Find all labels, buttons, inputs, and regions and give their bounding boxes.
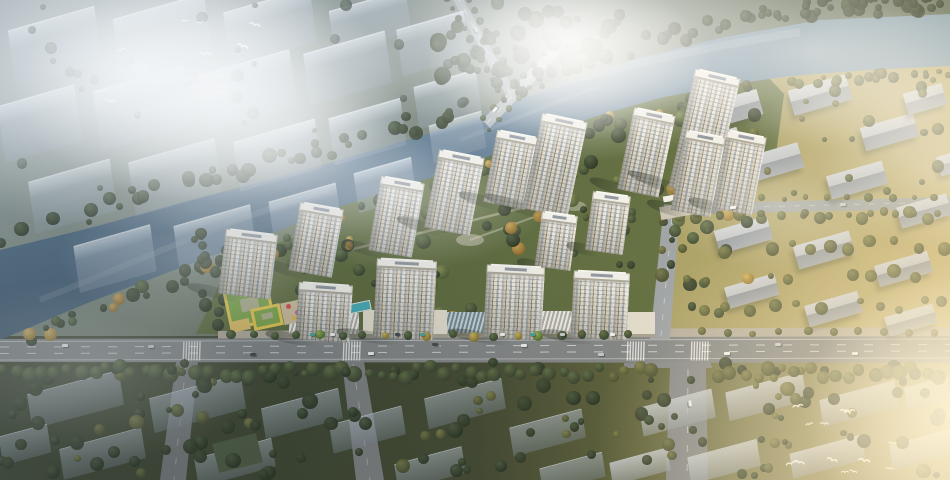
mist-and-clouds [0, 0, 950, 480]
cloud [330, 0, 800, 160]
cloud [660, 140, 900, 270]
cloud [620, 0, 950, 150]
cloud [250, 120, 550, 270]
cloud [0, 0, 420, 230]
cloud [820, 90, 950, 250]
aerial-rendering-scene [0, 0, 950, 480]
cloud [20, 0, 400, 200]
cloud [0, 280, 260, 460]
cloud [110, 60, 430, 250]
cloud [60, 180, 340, 330]
cloud [740, 10, 950, 190]
cloud [430, 0, 710, 140]
